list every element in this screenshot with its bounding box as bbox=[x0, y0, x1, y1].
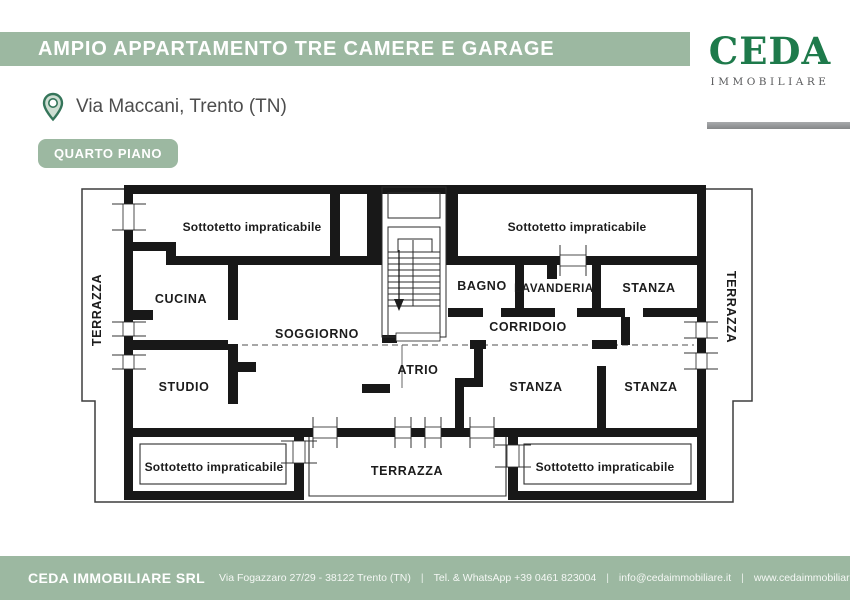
room-label-terrazza-right: TERRAZZA bbox=[724, 271, 738, 343]
room-label-stanza-mid: STANZA bbox=[509, 380, 562, 394]
footer-email: info@cedaimmobiliare.it bbox=[619, 572, 731, 584]
room-label-sottotetto-tr: Sottotetto impraticabile bbox=[508, 220, 647, 234]
room-label-sottotetto-bl: Sottotetto impraticabile bbox=[145, 460, 284, 474]
room-label-sottotetto-br: Sottotetto impraticabile bbox=[536, 460, 675, 474]
room-label-cucina: CUCINA bbox=[155, 292, 207, 306]
footer-address: Via Fogazzaro 27/29 - 38122 Trento (TN) bbox=[219, 572, 411, 584]
elevator-shaft bbox=[388, 193, 440, 218]
floor-plan: Sottotetto impraticabile Sottotetto impr… bbox=[0, 0, 850, 600]
footer-company: CEDA IMMOBILIARE SRL bbox=[28, 570, 205, 586]
footer-separator: | bbox=[606, 572, 609, 584]
window-icon bbox=[495, 445, 531, 467]
room-label-atrio: ATRIO bbox=[398, 363, 439, 377]
room-label-studio: STUDIO bbox=[159, 380, 210, 394]
room-label-bagno: BAGNO bbox=[457, 279, 507, 293]
window-icon bbox=[112, 355, 146, 369]
window-icon bbox=[684, 322, 718, 338]
room-label-soggiorno: SOGGIORNO bbox=[275, 327, 359, 341]
footer-contact-info: Via Fogazzaro 27/29 - 38122 Trento (TN) … bbox=[219, 572, 850, 584]
window-icon bbox=[313, 417, 337, 448]
footer-separator: | bbox=[741, 572, 744, 584]
window-icon bbox=[395, 417, 411, 448]
window-icon bbox=[684, 353, 718, 369]
room-label-terrazza-bottom: TERRAZZA bbox=[371, 464, 443, 478]
room-label-sottotetto-tl: Sottotetto impraticabile bbox=[183, 220, 322, 234]
window-icon bbox=[112, 322, 146, 336]
footer-bar: CEDA IMMOBILIARE SRL Via Fogazzaro 27/29… bbox=[0, 556, 850, 600]
window-icon bbox=[470, 417, 494, 448]
room-label-stanza-br: STANZA bbox=[624, 380, 677, 394]
footer-separator: | bbox=[421, 572, 424, 584]
room-label-lavanderia: LAVANDERIA bbox=[514, 283, 594, 295]
window-icon bbox=[560, 245, 586, 276]
room-label-stanza-tr: STANZA bbox=[622, 281, 675, 295]
stair-down-arrow bbox=[394, 250, 404, 311]
window-icon bbox=[112, 204, 146, 230]
room-label-terrazza-left: TERRAZZA bbox=[90, 274, 104, 346]
window-icon bbox=[425, 417, 441, 448]
stairwell bbox=[382, 187, 446, 388]
footer-website: www.cedaimmobiliare.it bbox=[754, 572, 850, 584]
room-label-corridoio: CORRIDOIO bbox=[489, 320, 567, 334]
footer-phone: Tel. & WhatsApp +39 0461 823004 bbox=[434, 572, 597, 584]
stair-door bbox=[396, 333, 440, 341]
